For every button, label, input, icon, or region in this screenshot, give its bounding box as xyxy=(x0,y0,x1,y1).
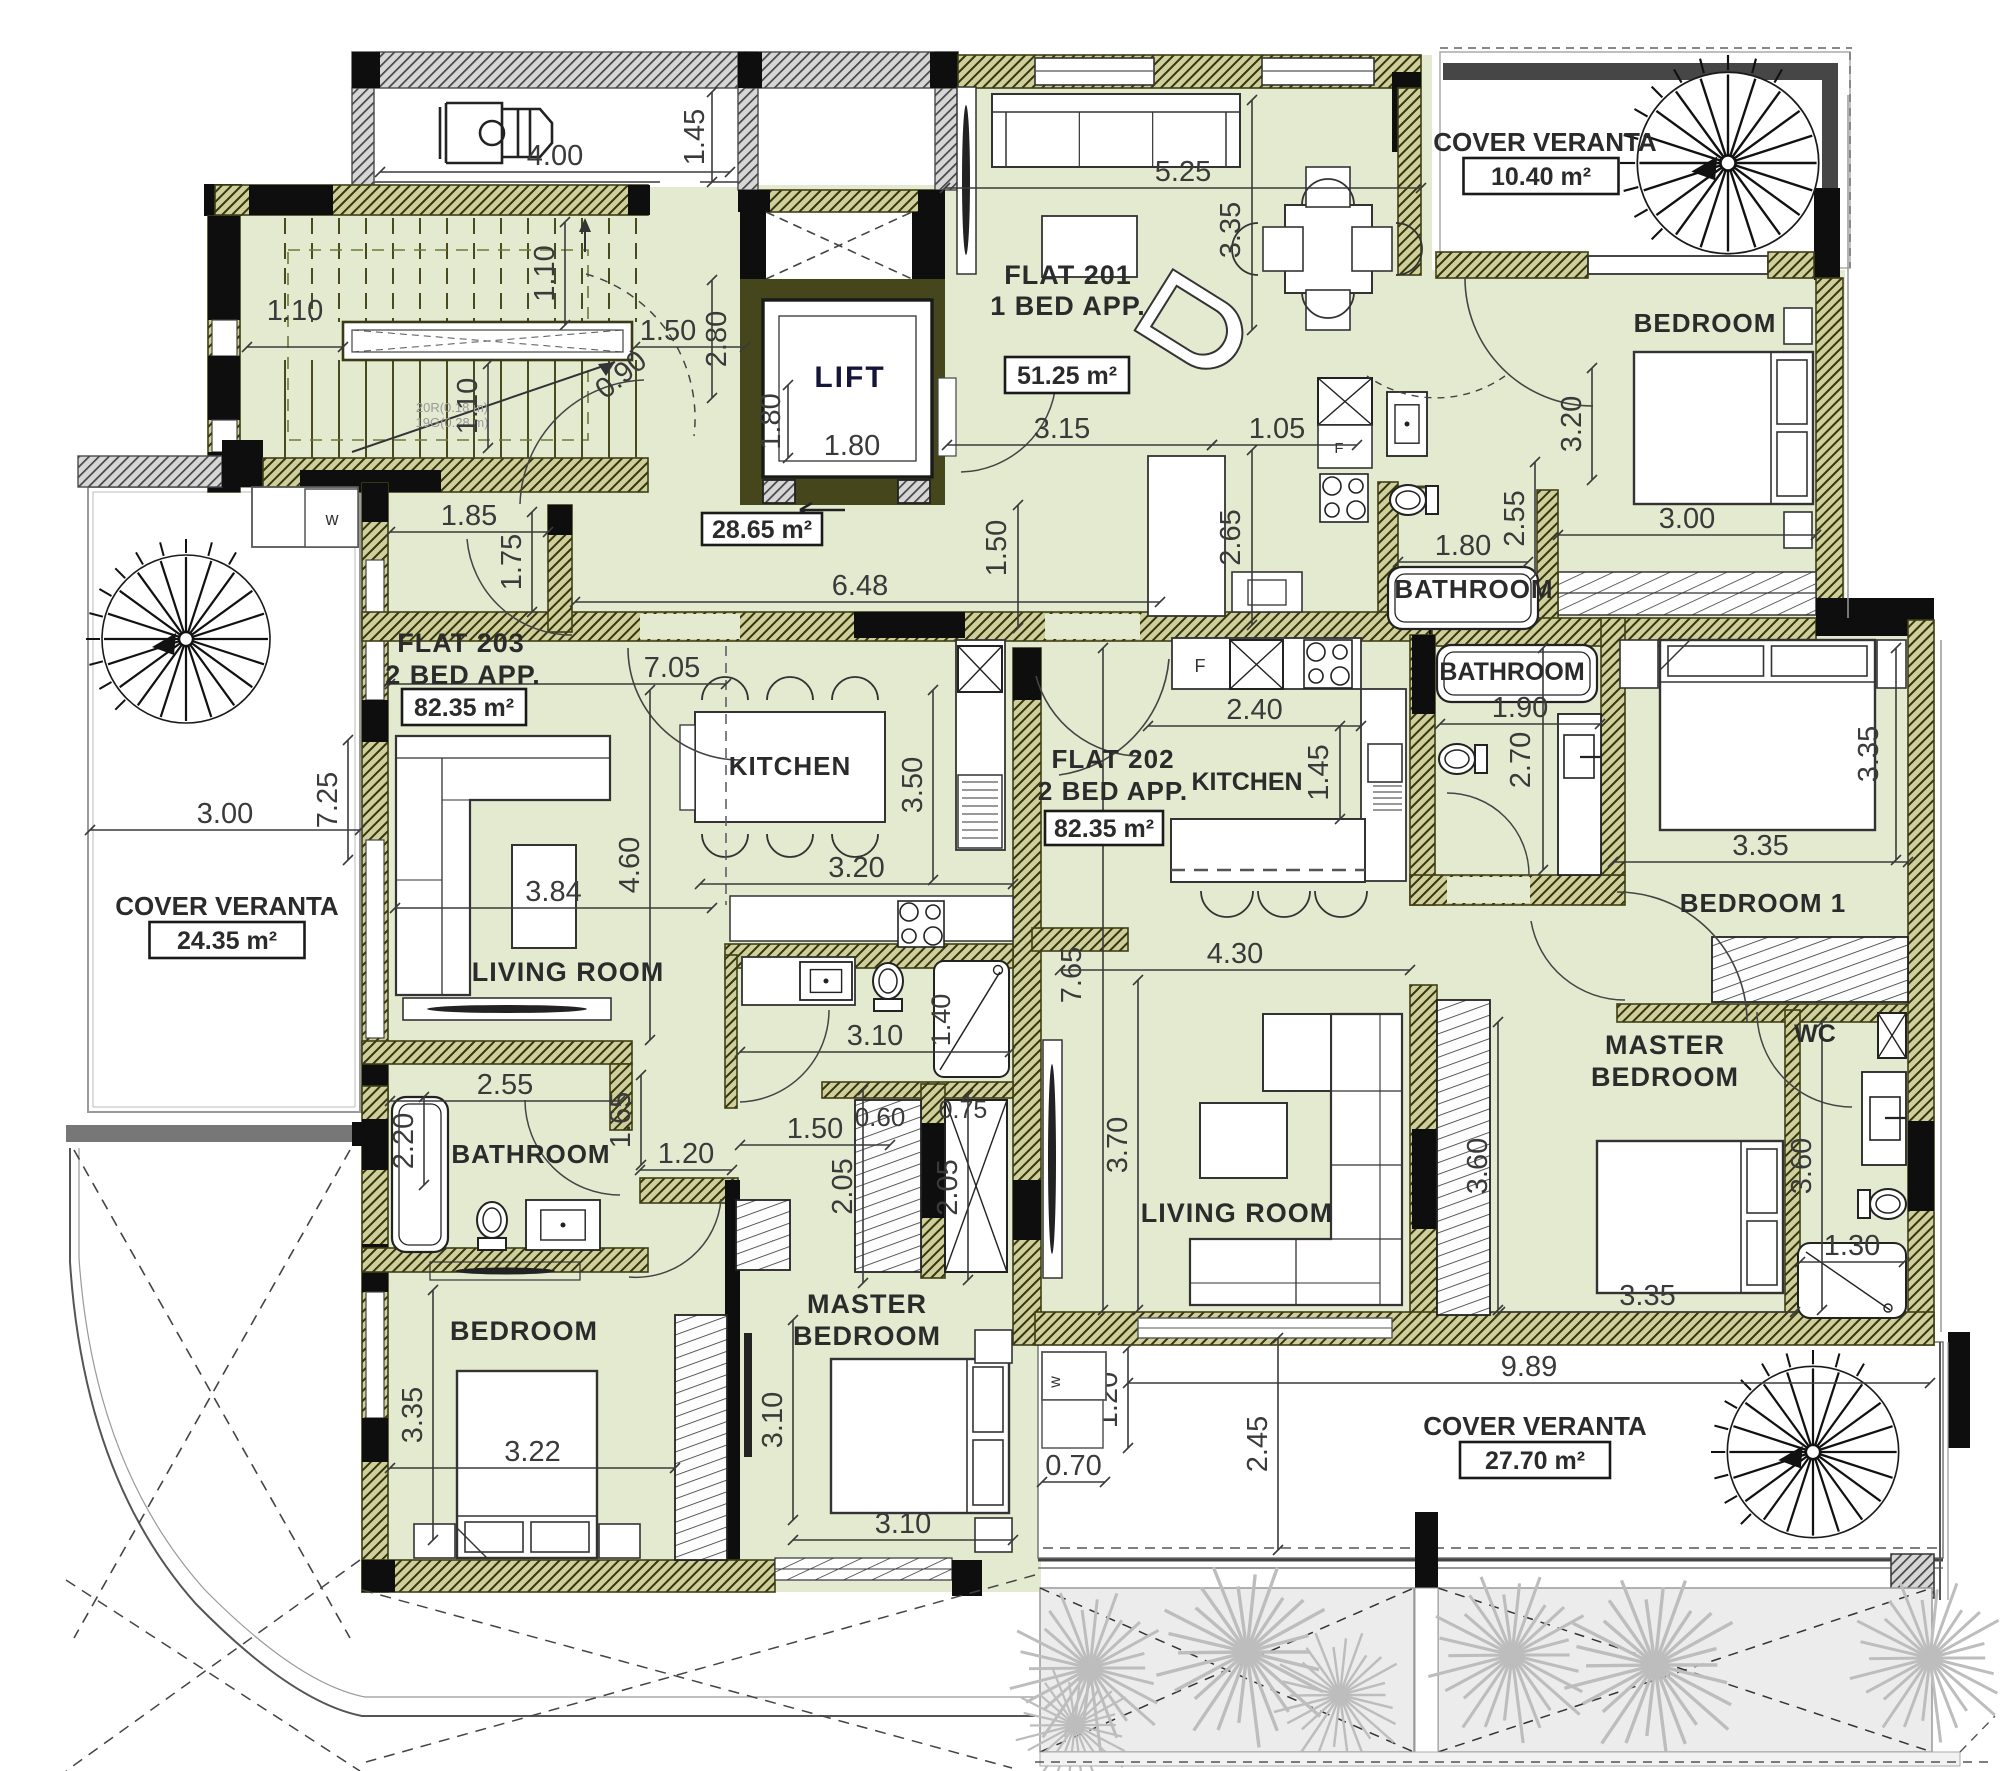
svg-text:82.35 m²: 82.35 m² xyxy=(1054,815,1154,843)
svg-text:FLAT 201: FLAT 201 xyxy=(1004,260,1132,290)
svg-text:w: w xyxy=(1047,1376,1064,1389)
svg-text:FLAT 202: FLAT 202 xyxy=(1051,744,1174,774)
svg-text:2.70: 2.70 xyxy=(1505,732,1537,788)
svg-text:4.60: 4.60 xyxy=(614,837,646,893)
svg-text:KITCHEN: KITCHEN xyxy=(729,751,852,781)
svg-text:2.65: 2.65 xyxy=(1215,509,1247,565)
svg-text:3.22: 3.22 xyxy=(504,1436,560,1468)
svg-text:2.55: 2.55 xyxy=(1499,490,1531,546)
svg-text:BEDROOM: BEDROOM xyxy=(793,1321,941,1351)
svg-text:2.45: 2.45 xyxy=(1242,1416,1274,1472)
svg-text:1.45: 1.45 xyxy=(679,109,711,165)
svg-text:3.70: 3.70 xyxy=(1102,1117,1134,1173)
svg-text:7.65: 7.65 xyxy=(1056,947,1088,1003)
svg-text:F: F xyxy=(1195,656,1206,676)
svg-text:10.40 m²: 10.40 m² xyxy=(1491,163,1591,191)
svg-text:5.25: 5.25 xyxy=(1155,156,1211,188)
svg-text:COVER VERANTA: COVER VERANTA xyxy=(115,891,339,921)
svg-text:F: F xyxy=(1334,440,1343,457)
svg-text:1.50: 1.50 xyxy=(787,1113,843,1145)
svg-text:3.35: 3.35 xyxy=(1215,202,1247,258)
svg-text:2 BED APP.: 2 BED APP. xyxy=(385,660,541,690)
svg-text:3.10: 3.10 xyxy=(757,1392,789,1448)
svg-text:27.70 m²: 27.70 m² xyxy=(1485,1447,1585,1475)
svg-text:4.00: 4.00 xyxy=(527,140,583,172)
svg-text:BATHROOM: BATHROOM xyxy=(451,1139,610,1169)
svg-text:3.35: 3.35 xyxy=(1619,1280,1675,1312)
svg-text:LIFT: LIFT xyxy=(814,361,885,394)
svg-text:1.30: 1.30 xyxy=(1824,1230,1880,1262)
svg-text:BATHROOM: BATHROOM xyxy=(1439,658,1584,686)
svg-text:7.05: 7.05 xyxy=(644,652,700,684)
svg-text:1.80: 1.80 xyxy=(824,430,880,462)
svg-text:7.25: 7.25 xyxy=(312,772,344,828)
svg-text:w: w xyxy=(325,509,340,529)
svg-text:BEDROOM: BEDROOM xyxy=(1591,1062,1739,1092)
svg-text:1.45: 1.45 xyxy=(1303,744,1335,800)
svg-text:3.10: 3.10 xyxy=(875,1508,931,1540)
svg-text:6.48: 6.48 xyxy=(832,570,888,602)
svg-text:2.80: 2.80 xyxy=(701,311,733,367)
svg-text:24.35 m²: 24.35 m² xyxy=(177,927,277,955)
svg-text:1.05: 1.05 xyxy=(1249,413,1305,445)
svg-text:MASTER: MASTER xyxy=(1605,1030,1725,1060)
svg-text:3.60: 3.60 xyxy=(1462,1138,1494,1194)
svg-text:LIVING ROOM: LIVING ROOM xyxy=(472,957,665,987)
svg-text:COVER VERANTA: COVER VERANTA xyxy=(1433,127,1657,157)
svg-text:2 BED APP.: 2 BED APP. xyxy=(1038,776,1188,806)
svg-text:0.70: 0.70 xyxy=(1045,1450,1101,1482)
svg-text:4.30: 4.30 xyxy=(1207,938,1263,970)
svg-text:0.75: 0.75 xyxy=(939,1096,988,1124)
svg-text:1.50: 1.50 xyxy=(981,520,1013,576)
svg-text:KITCHEN: KITCHEN xyxy=(1191,768,1302,796)
svg-text:3.35: 3.35 xyxy=(1732,830,1788,862)
svg-text:3.10: 3.10 xyxy=(847,1020,903,1052)
svg-text:3.60: 3.60 xyxy=(1786,1138,1818,1194)
svg-text:1.80: 1.80 xyxy=(755,393,787,449)
svg-text:BEDROOM 1: BEDROOM 1 xyxy=(1680,888,1846,918)
svg-text:2.20: 2.20 xyxy=(388,1113,420,1169)
svg-text:9.89: 9.89 xyxy=(1501,1351,1557,1383)
svg-text:3.35: 3.35 xyxy=(1853,726,1885,782)
svg-text:MASTER: MASTER xyxy=(807,1289,927,1319)
svg-text:2.05: 2.05 xyxy=(827,1158,859,1214)
svg-text:3.35: 3.35 xyxy=(397,1387,429,1443)
svg-text:1.50: 1.50 xyxy=(640,315,696,347)
svg-text:3.50: 3.50 xyxy=(897,757,929,813)
svg-text:LIVING ROOM: LIVING ROOM xyxy=(1141,1198,1334,1228)
svg-text:BEDROOM: BEDROOM xyxy=(450,1316,598,1346)
svg-text:82.35 m²: 82.35 m² xyxy=(414,694,514,722)
svg-text:FLAT 203: FLAT 203 xyxy=(397,628,525,658)
svg-text:2.55: 2.55 xyxy=(477,1069,533,1101)
svg-text:1.90: 1.90 xyxy=(1492,692,1548,724)
svg-text:COVER VERANTA: COVER VERANTA xyxy=(1423,1411,1647,1441)
svg-text:1.85: 1.85 xyxy=(441,500,497,532)
svg-text:3.15: 3.15 xyxy=(1034,413,1090,445)
svg-text:WC: WC xyxy=(1794,1020,1836,1048)
svg-text:1.20: 1.20 xyxy=(658,1138,714,1170)
svg-text:1.80: 1.80 xyxy=(1435,530,1491,562)
svg-text:51.25 m²: 51.25 m² xyxy=(1017,362,1117,390)
svg-text:3.20: 3.20 xyxy=(828,852,884,884)
svg-text:BEDROOM: BEDROOM xyxy=(1634,308,1777,338)
svg-text:2.05: 2.05 xyxy=(932,1159,964,1215)
svg-text:3.84: 3.84 xyxy=(525,876,581,908)
svg-text:2.40: 2.40 xyxy=(1226,694,1282,726)
svg-text:28.65 m²: 28.65 m² xyxy=(712,516,812,544)
svg-text:1.10: 1.10 xyxy=(267,295,323,327)
svg-text:3.00: 3.00 xyxy=(1659,503,1715,535)
svg-text:1 BED APP.: 1 BED APP. xyxy=(990,291,1146,321)
svg-text:1.10: 1.10 xyxy=(452,378,484,434)
svg-text:BATHROOM: BATHROOM xyxy=(1394,574,1553,604)
svg-text:1.75: 1.75 xyxy=(496,534,528,590)
svg-text:1.40: 1.40 xyxy=(926,994,956,1047)
svg-text:3.20: 3.20 xyxy=(1556,396,1588,452)
svg-text:1.10: 1.10 xyxy=(529,245,561,301)
svg-text:3.00: 3.00 xyxy=(197,798,253,830)
